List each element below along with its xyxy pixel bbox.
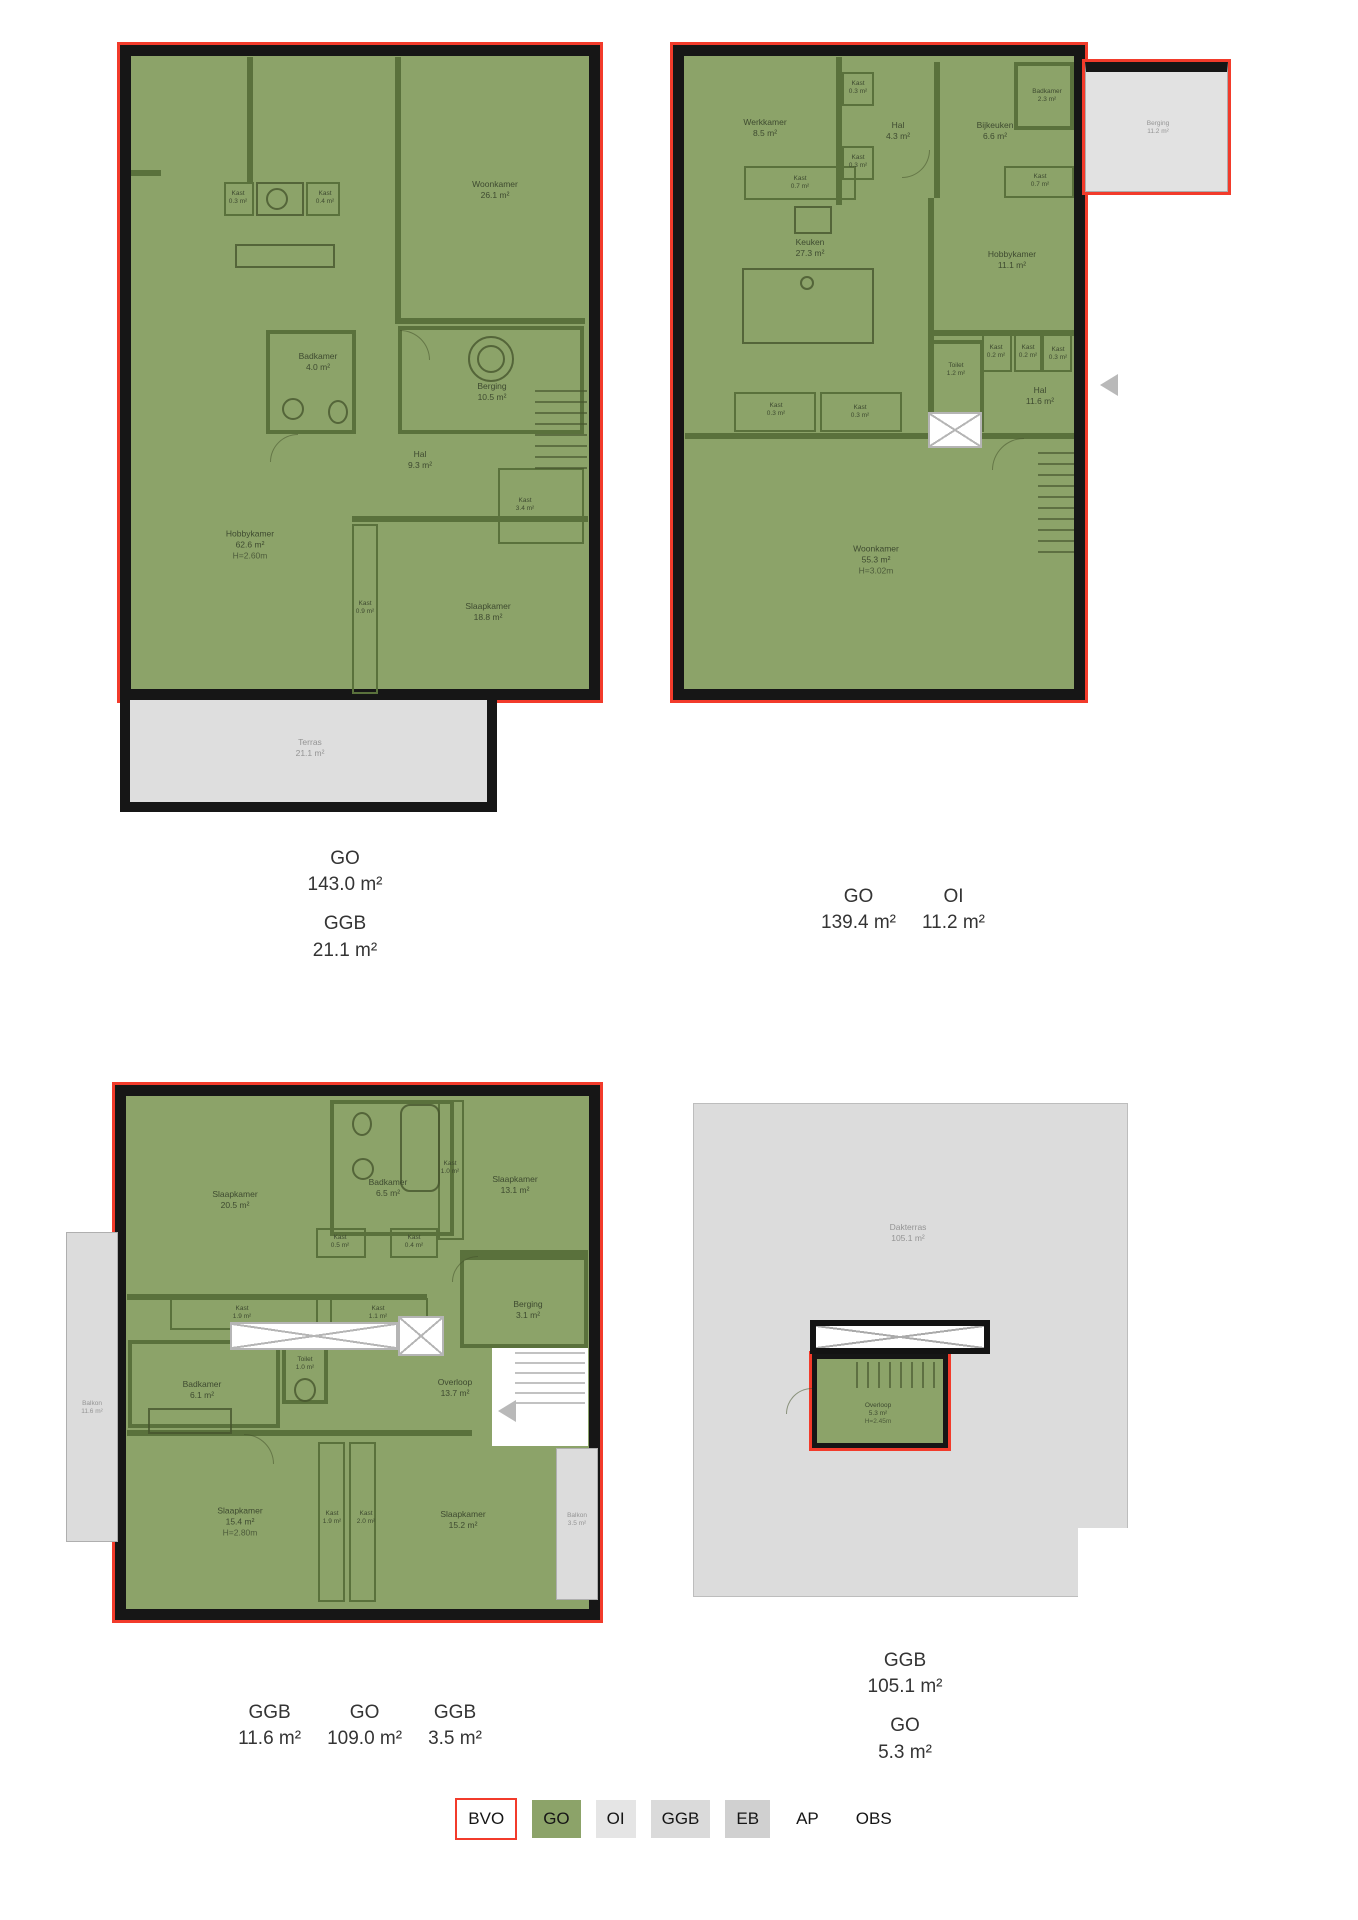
label-line: 0.3 m² [849, 162, 867, 170]
legend: BVOGOOIGGBEBAPOBS [0, 1798, 1358, 1840]
label-line: 2.3 m² [1032, 96, 1062, 104]
label-line: Woonkamer [853, 543, 899, 554]
label-line: H=2.45m [865, 1418, 892, 1426]
label-line: Hobbykamer [988, 249, 1036, 260]
floor-3-room-label: Kast1.9 m² [323, 1510, 341, 1526]
legend-oi: OI [596, 1800, 636, 1838]
label-line: Kast [405, 1234, 423, 1242]
label-line: 11.2 m² [1147, 128, 1169, 136]
label-line: 10.5 m² [477, 392, 506, 403]
floor-2-room-label: Hal4.3 m² [886, 120, 910, 142]
label-line: 0.3 m² [229, 198, 247, 206]
floor-3-room-label: Berging3.1 m² [513, 1299, 542, 1321]
label-line: Kast [767, 402, 785, 410]
floor-3-room-label: Kast1.0 m² [441, 1160, 459, 1176]
label-line: 3.4 m² [516, 505, 534, 513]
label-line: Kast [229, 190, 247, 198]
label-line: 0.4 m² [316, 198, 334, 206]
floor-2-room-label: Kast0.2 m² [987, 344, 1005, 360]
floor-1-room-label: Berging10.5 m² [477, 381, 506, 403]
label-line: 26.1 m² [472, 190, 518, 201]
floor-2-room-label: Hobbykamer11.1 m² [988, 249, 1036, 271]
legend-ap: AP [785, 1800, 830, 1838]
washing-machine-icon [468, 336, 514, 382]
label-line: GO [327, 1700, 402, 1726]
floor-3-total-GO: GO109.0 m² [327, 1700, 402, 1752]
label-line: Bijkeuken [977, 120, 1014, 131]
floor-2-room-label: Kast0.3 m² [767, 402, 785, 418]
label-line: Hobbykamer [226, 528, 274, 539]
label-line: Kast [516, 497, 534, 505]
label-line: 15.2 m² [440, 1520, 485, 1531]
label-line: Werkkamer [743, 117, 786, 128]
label-line: GO [308, 846, 383, 872]
label-line: Kast [987, 344, 1005, 352]
label-line: 0.7 m² [791, 183, 809, 191]
floor-2-room-label: Kast0.3 m² [1049, 346, 1067, 362]
floor-1-room-label: Hal9.3 m² [408, 449, 432, 471]
label-line: 109.0 m² [327, 1726, 402, 1752]
label-line: Kast [791, 175, 809, 183]
label-line: 5.3 m² [865, 1410, 892, 1418]
wall-segment [934, 62, 940, 198]
floor-1-room-label: Kast0.9 m² [356, 600, 374, 616]
label-line: 0.9 m² [356, 608, 374, 616]
label-line: 5.3 m² [868, 1740, 943, 1766]
label-line: 1.9 m² [323, 1518, 341, 1526]
label-line: 1.0 m² [441, 1168, 459, 1176]
label-line: H=2.80m [217, 1528, 262, 1539]
label-line: 0.3 m² [767, 410, 785, 418]
label-line: Slaapkamer [492, 1174, 537, 1185]
floor-3-room-label: Slaapkamer15.4 m²H=2.80m [217, 1505, 262, 1538]
wall-segment [395, 57, 401, 319]
label-line: 62.6 m² [226, 539, 274, 550]
label-line: 0.2 m² [1019, 352, 1037, 360]
floor-2-room-label: Werkkamer8.5 m² [743, 117, 786, 139]
floor-2-room-label: Woonkamer55.3 m²H=3.02m [853, 543, 899, 576]
label-line: 9.3 m² [408, 460, 432, 471]
label-line: 143.0 m² [308, 872, 383, 898]
floor-1-total-GO: GO143.0 m² [308, 846, 383, 898]
label-line: GGB [308, 911, 383, 937]
label-line: Badkamer [369, 1177, 408, 1188]
label-line: AP [796, 1809, 819, 1829]
floor-3-total-GGB: GGB3.5 m² [428, 1700, 482, 1752]
floorplan-canvas: Terras21.1 m²Kast0.3 m²Kast0.4 m²Woonkam… [0, 0, 1358, 1920]
label-line: 11.2 m² [922, 910, 985, 936]
wall-segment [131, 170, 161, 176]
faucet-icon [800, 276, 814, 290]
floor-3-room-label: Badkamer6.5 m² [369, 1177, 408, 1199]
toilet-icon [352, 1112, 372, 1136]
label-line: 55.3 m² [853, 554, 899, 565]
label-line: Berging [1147, 120, 1169, 128]
label-line: Berging [477, 381, 506, 392]
label-line: Woonkamer [472, 179, 518, 190]
label-line: 21.1 m² [308, 938, 383, 964]
label-line: Kast [316, 190, 334, 198]
label-line: 3.5 m² [428, 1726, 482, 1752]
label-line: Slaapkamer [212, 1189, 257, 1200]
floor-3-room-label: Slaapkamer13.1 m² [492, 1174, 537, 1196]
floor-1-room-label: Kast0.3 m² [229, 190, 247, 206]
label-line: Kast [1031, 173, 1049, 181]
wall-segment [836, 57, 842, 205]
label-line: Slaapkamer [465, 601, 510, 612]
label-line: 20.5 m² [212, 1200, 257, 1211]
label-line: 11.1 m² [988, 260, 1036, 271]
label-line: H=3.02m [853, 566, 899, 577]
label-line: OBS [856, 1809, 892, 1829]
label-line: 21.1 m² [296, 748, 325, 759]
label-line: 11.6 m² [81, 1408, 103, 1416]
floor-1-room-label: Kast3.4 m² [516, 497, 534, 513]
label-line: OI [607, 1809, 625, 1829]
label-line: 11.6 m² [238, 1726, 301, 1752]
label-line: 6.6 m² [977, 131, 1014, 142]
label-line: GGB [868, 1648, 943, 1674]
stairs-icon [535, 390, 587, 478]
label-line: Kast [441, 1160, 459, 1168]
entrance-arrow-icon [498, 1400, 516, 1422]
label-line: Hal [408, 449, 432, 460]
floor-3-room-label: Slaapkamer15.2 m² [440, 1509, 485, 1531]
label-line: EB [736, 1809, 759, 1829]
floor-2-room-label: Kast0.7 m² [791, 175, 809, 191]
label-line: 0.3 m² [851, 412, 869, 420]
label-line: 2.0 m² [357, 1518, 375, 1526]
floor-2-room-label: Kast0.7 m² [1031, 173, 1049, 189]
legend-eb: EB [725, 1800, 770, 1838]
label-line: Hal [886, 120, 910, 131]
elevator-shaft-icon [928, 412, 982, 448]
floor-2-room-label: Kast0.3 m² [849, 154, 867, 170]
floor-1-room-label: Woonkamer26.1 m² [472, 179, 518, 201]
floor-3-room-label: Badkamer6.1 m² [183, 1379, 222, 1401]
floor-3-room-label: Overloop13.7 m² [438, 1377, 473, 1399]
floor-3-balkon-left [66, 1232, 118, 1542]
dak-x-box [810, 1320, 990, 1354]
label-line: Berging [513, 1299, 542, 1310]
floor-2-room-label: Kast0.2 m² [1019, 344, 1037, 360]
floor-1-totals: GO143.0 m²GGB21.1 m² [308, 846, 383, 977]
sink-icon [282, 398, 304, 420]
floor-2-room-label: Bijkeuken6.6 m² [977, 120, 1014, 142]
label-line: Kast [1019, 344, 1037, 352]
label-line: 0.7 m² [1031, 181, 1049, 189]
legend-ggb: GGB [651, 1800, 711, 1838]
floor-2-room-label: Kast0.3 m² [851, 404, 869, 420]
label-line: 105.1 m² [868, 1674, 943, 1700]
label-line: Toilet [947, 362, 965, 370]
floor-2-room-label: Kast0.3 m² [849, 80, 867, 96]
wall-segment [460, 1250, 588, 1256]
floor-3-room-label: Kast0.4 m² [405, 1234, 423, 1250]
label-line: 1.2 m² [947, 370, 965, 378]
label-line: Kast [851, 404, 869, 412]
floor-3-room-label: Toilet1.0 m² [296, 1356, 314, 1372]
label-line: 3.5 m² [567, 1520, 587, 1528]
floor-4-dakterras-label: Dakterras105.1 m² [890, 1222, 927, 1244]
label-line: 6.1 m² [183, 1390, 222, 1401]
label-line: OI [922, 884, 985, 910]
label-line: 105.1 m² [890, 1233, 927, 1244]
label-line: 13.1 m² [492, 1185, 537, 1196]
label-line: 1.0 m² [296, 1364, 314, 1372]
floor-2-room-label: Hal11.6 m² [1026, 385, 1054, 407]
floor-3-room-label: Kast2.0 m² [357, 1510, 375, 1526]
label-line: BVO [468, 1809, 504, 1829]
floor-1-room-label: Badkamer4.0 m² [299, 351, 338, 373]
label-line: Kast [369, 1305, 387, 1313]
floor-1-total-GGB: GGB21.1 m² [308, 911, 383, 963]
label-line: GO [543, 1809, 569, 1829]
floor-2-room-label: Badkamer2.3 m² [1032, 88, 1062, 104]
floor-3-room-label: Slaapkamer20.5 m² [212, 1189, 257, 1211]
toilet-icon [294, 1378, 316, 1402]
label-line: Overloop [865, 1402, 892, 1410]
label-line: Badkamer [1032, 88, 1062, 96]
label-line: Kast [849, 154, 867, 162]
legend-obs: OBS [845, 1800, 903, 1838]
label-line: 4.0 m² [299, 362, 338, 373]
floor-4-notch [1078, 1528, 1130, 1598]
stove-icon [794, 206, 832, 234]
floor-2-total-OI: OI11.2 m² [922, 884, 985, 936]
wall-segment [247, 57, 253, 183]
label-line: GGB [428, 1700, 482, 1726]
label-line: 3.1 m² [513, 1310, 542, 1321]
label-line: Kast [849, 80, 867, 88]
floor-3-balkon-left-label: Balkon11.6 m² [81, 1400, 103, 1416]
floor-3-room-label: Kast0.5 m² [331, 1234, 349, 1250]
wall-segment [395, 318, 585, 324]
label-line: Kast [1049, 346, 1067, 354]
wall-segment [928, 198, 934, 434]
table-fixture [235, 244, 335, 268]
label-line: 0.3 m² [1049, 354, 1067, 362]
floor-2-main [673, 45, 1085, 700]
label-line: 4.3 m² [886, 131, 910, 142]
label-line: Slaapkamer [217, 1505, 262, 1516]
label-line: GO [868, 1713, 943, 1739]
label-line: Kast [233, 1305, 251, 1313]
legend-bvo: BVO [455, 1798, 517, 1840]
wall-segment [127, 1294, 427, 1300]
floor-3-total-GGB: GGB11.6 m² [238, 1700, 301, 1752]
label-line: Slaapkamer [440, 1509, 485, 1520]
stairs-icon [515, 1352, 585, 1407]
floor-1-room-label: Kast0.4 m² [316, 190, 334, 206]
floor-2-totals: GO139.4 m²OI11.2 m² [821, 884, 985, 936]
label-line: Balkon [81, 1400, 103, 1408]
label-line: 0.4 m² [405, 1242, 423, 1250]
vide-x-strip [230, 1322, 398, 1350]
floor-3-totals: GGB11.6 m²GO109.0 m²GGB3.5 m² [238, 1700, 482, 1752]
label-line: 13.7 m² [438, 1388, 473, 1399]
label-line: 1.1 m² [369, 1313, 387, 1321]
label-line: Keuken [796, 237, 825, 248]
label-line: 1.9 m² [233, 1313, 251, 1321]
label-line: 0.2 m² [987, 352, 1005, 360]
floor-1-room-label: Slaapkamer18.8 m² [465, 601, 510, 623]
floor-2-room-label: Toilet1.2 m² [947, 362, 965, 378]
label-line: Badkamer [183, 1379, 222, 1390]
wall-segment [928, 330, 1074, 336]
label-line: Hal [1026, 385, 1054, 396]
label-line: Overloop [438, 1377, 473, 1388]
label-line: 8.5 m² [743, 128, 786, 139]
label-line: Kast [357, 1510, 375, 1518]
floor-2-room-label: Keuken27.3 m² [796, 237, 825, 259]
label-line: Dakterras [890, 1222, 927, 1233]
label-line: 11.6 m² [1026, 396, 1054, 407]
toilet-icon [328, 400, 348, 424]
legend-go: GO [532, 1800, 580, 1838]
label-line: GGB [662, 1809, 700, 1829]
stairs-icon [1038, 452, 1074, 556]
label-line: Badkamer [299, 351, 338, 362]
floor-3-balkon-right-label: Balkon3.5 m² [567, 1512, 587, 1528]
floor-1-room-label: Hobbykamer62.6 m²H=2.60m [226, 528, 274, 561]
label-line: Kast [331, 1234, 349, 1242]
label-line: 27.3 m² [796, 248, 825, 259]
label-line: 6.5 m² [369, 1188, 408, 1199]
label-line: 15.4 m² [217, 1516, 262, 1527]
label-line: 0.5 m² [331, 1242, 349, 1250]
label-line: GO [821, 884, 896, 910]
stairs-icon [856, 1362, 936, 1388]
label-line: 0.3 m² [849, 88, 867, 96]
sink-icon [266, 188, 288, 210]
floor-4-total-GO: GO5.3 m² [868, 1713, 943, 1765]
double-sink [148, 1408, 232, 1434]
label-line: Toilet [296, 1356, 314, 1364]
floor-2-total-GO: GO139.4 m² [821, 884, 896, 936]
label-line: GGB [238, 1700, 301, 1726]
label-line: Balkon [567, 1512, 587, 1520]
label-line: Terras [296, 737, 325, 748]
floor-2-berging-oi-label: Berging11.2 m² [1147, 120, 1169, 136]
label-line: 18.8 m² [465, 612, 510, 623]
label-line: Kast [356, 600, 374, 608]
floor-4-totals: GGB105.1 m²GO5.3 m² [868, 1648, 943, 1779]
label-line: Kast [323, 1510, 341, 1518]
floor-4-room-label: Overloop5.3 m²H=2.45m [865, 1402, 892, 1426]
elevator-shaft-icon [398, 1316, 444, 1356]
label-line: H=2.60m [226, 551, 274, 562]
floor-3-room-label: Kast1.9 m² [233, 1305, 251, 1321]
label-line: 139.4 m² [821, 910, 896, 936]
wall-segment [352, 516, 588, 522]
floor-1-terras-label: Terras21.1 m² [296, 737, 325, 759]
floor-4-total-GGB: GGB105.1 m² [868, 1648, 943, 1700]
entrance-arrow-icon [1100, 374, 1118, 396]
floor-3-room-label: Kast1.1 m² [369, 1305, 387, 1321]
